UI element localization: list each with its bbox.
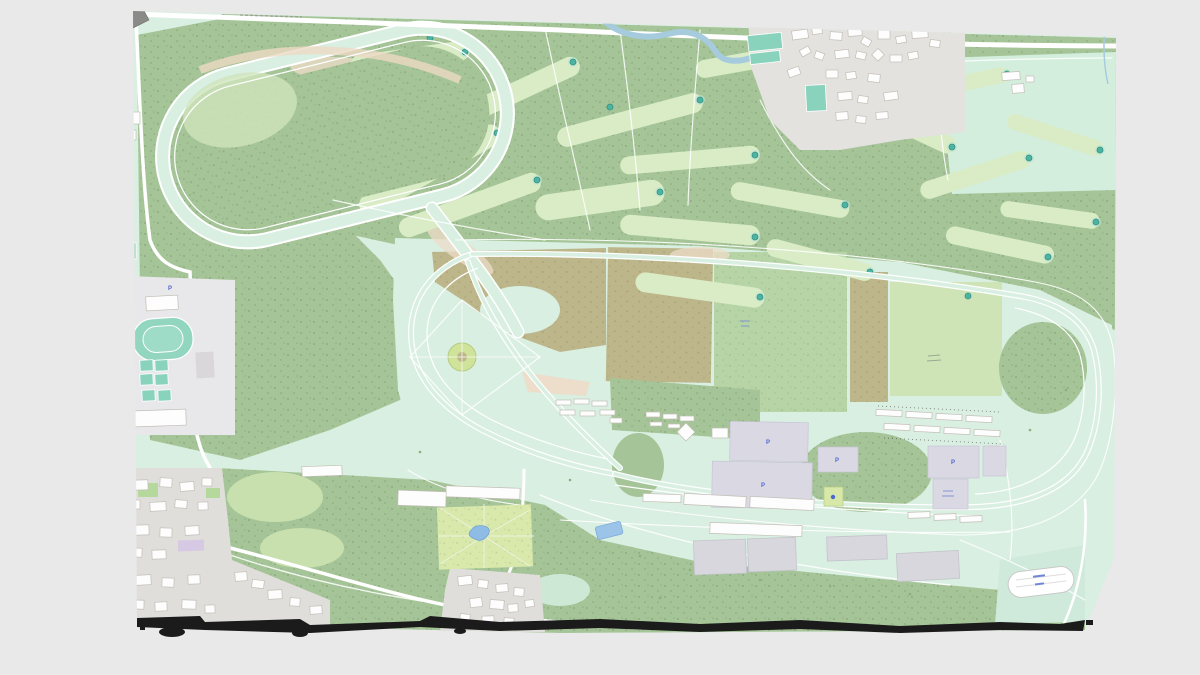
parking-label: P bbox=[168, 286, 172, 292]
parking-label: P bbox=[766, 440, 770, 446]
parking-label: P bbox=[951, 460, 955, 466]
playground-icon bbox=[831, 495, 835, 499]
grandstand bbox=[643, 493, 681, 502]
parking-label: P bbox=[835, 458, 839, 464]
map-canvas[interactable]: P bbox=[0, 0, 1200, 675]
star-path-park bbox=[437, 504, 534, 570]
map-viewport[interactable]: P bbox=[0, 0, 1200, 675]
parking-lot bbox=[933, 479, 968, 509]
sports-pitch bbox=[747, 32, 782, 51]
parking-label: P bbox=[761, 483, 765, 489]
parking-lot bbox=[983, 446, 1006, 476]
